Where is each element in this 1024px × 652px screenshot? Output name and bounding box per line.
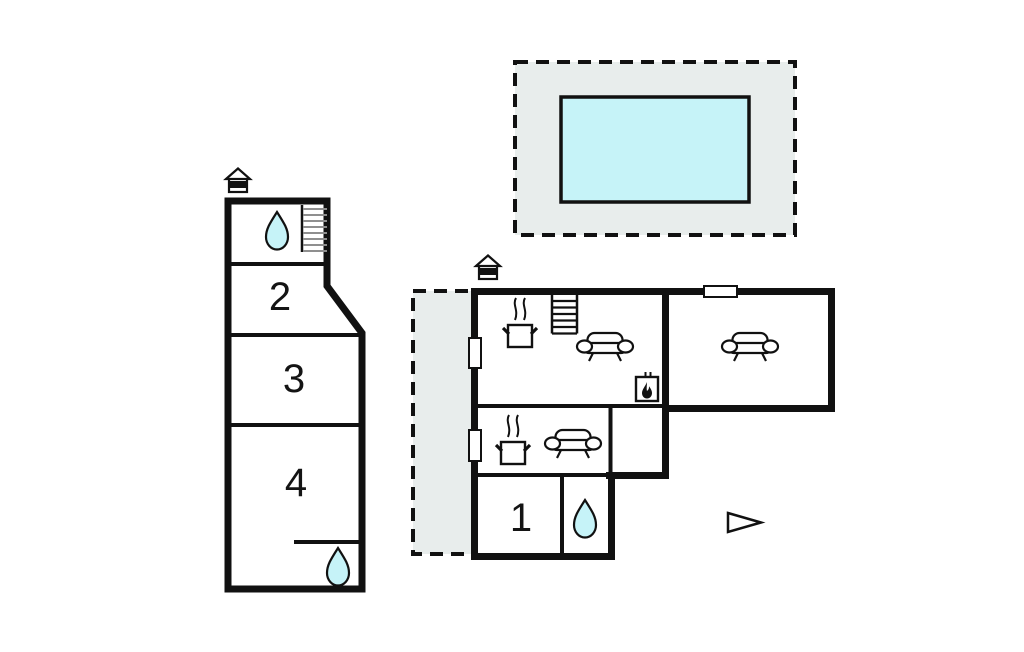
annex-building: 2 3 4 (226, 169, 362, 590)
pool (561, 97, 749, 202)
window (469, 430, 481, 461)
room-4-label: 4 (285, 461, 307, 505)
entrance-icon (476, 256, 500, 280)
floor-plan-canvas: 2 3 4 (0, 0, 1024, 652)
pool-area (515, 62, 795, 235)
room-1-label: 1 (510, 496, 532, 540)
entrance-icon (226, 169, 250, 193)
room-3-label: 3 (283, 357, 305, 401)
fireplace-icon (636, 372, 658, 401)
north-arrow-icon (728, 513, 761, 532)
window (704, 286, 737, 297)
room-2-label: 2 (269, 275, 291, 319)
stairs-icon (552, 295, 577, 334)
terrace (413, 291, 475, 554)
main-building: 1 (469, 256, 835, 561)
window (469, 338, 481, 368)
floor-plan: 2 3 4 (0, 0, 1024, 652)
